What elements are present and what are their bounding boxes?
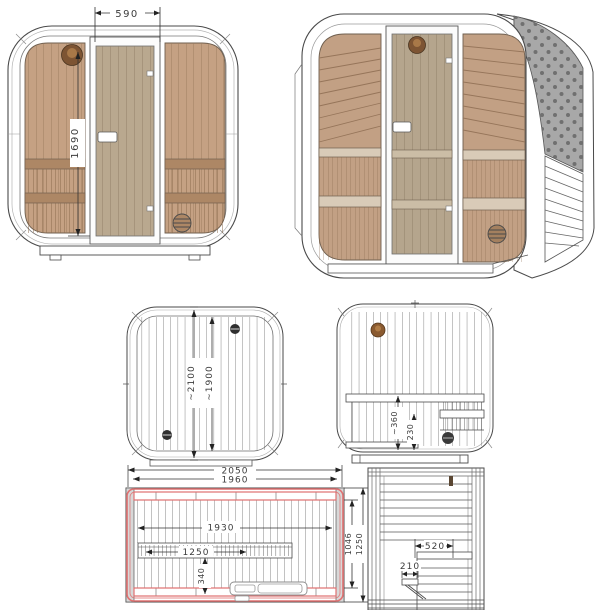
- right-glass-panel: [165, 43, 225, 233]
- side-elevation-view: 520 210: [361, 463, 491, 610]
- door-hinge-top: [147, 71, 153, 76]
- door-handle-3d: [393, 122, 411, 132]
- dim-label-heater-gap: 340: [197, 568, 206, 585]
- front-elevation-view: 590 1690: [6, 4, 244, 266]
- dim-label-bench-length: 1250: [183, 548, 210, 558]
- glass-door: [90, 37, 160, 244]
- sauna-light-icon-3d: [409, 37, 426, 54]
- upper-bench-edge: [346, 394, 484, 402]
- drawing-sheet: 590 1690: [0, 0, 610, 610]
- right-glass-panel-3d: [463, 34, 525, 262]
- vent-icon-rear: [442, 432, 454, 444]
- vent-icon-3d: [488, 225, 506, 243]
- dim-label-interior-depth: 1046: [344, 533, 353, 555]
- dim-label-door-height: 1690: [70, 127, 81, 158]
- dim-label-outer-depth: ~2100: [187, 365, 197, 400]
- dim-label-frame-width: 1960: [222, 476, 249, 486]
- left-glass-panel-3d: [319, 34, 381, 260]
- vent-icon: [173, 214, 191, 232]
- dim-label-step-depth: 210: [400, 562, 420, 572]
- perspective-view: [292, 0, 610, 292]
- hinge-block: [449, 476, 453, 486]
- glass-door-3d: [386, 26, 458, 264]
- cabin-base: [40, 246, 210, 260]
- sauna-light-icon-rear: [371, 323, 385, 337]
- dim-label-inner-depth: ~1900: [205, 365, 215, 400]
- side-frame: [368, 468, 484, 610]
- rear-elevation-view: ~360 230: [330, 298, 500, 470]
- dim-label-bench-height: ~360: [390, 411, 399, 435]
- roof-screw-bottom-left: [162, 430, 172, 440]
- sauna-light-icon: [62, 45, 83, 66]
- floor-plan-view: 2050 1960: [116, 461, 372, 610]
- door-handle: [98, 132, 117, 142]
- dim-label-ledge-height: 230: [406, 424, 415, 441]
- dim-label-interior-width: 1930: [208, 524, 235, 534]
- dim-label-bench-depth: 520: [425, 542, 445, 552]
- dim-frame-width: 1960: [133, 476, 337, 486]
- door-hinge-bottom: [147, 206, 153, 211]
- top-plan-view: ~2100 ~1900: [120, 300, 290, 472]
- dim-label-door-width: 590: [115, 9, 139, 20]
- roof-screw-top-right: [230, 324, 240, 334]
- slat-wall: [545, 156, 583, 262]
